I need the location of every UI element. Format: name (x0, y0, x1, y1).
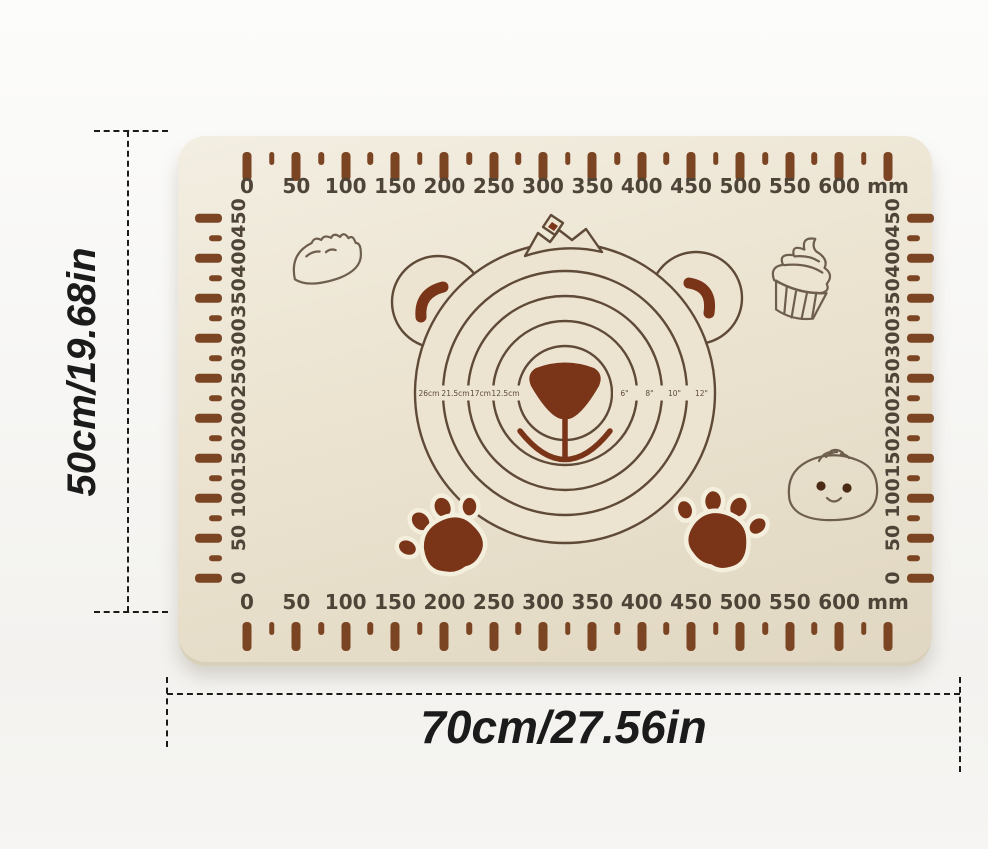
circle-label-inch: 6" (620, 389, 628, 398)
circle-label-cm: 12.5cm (491, 389, 519, 398)
circle-label-cm: 17cm (470, 389, 491, 398)
product-image: 50cm/19.68in 050100150200250300350400450… (0, 0, 988, 849)
dumpling-icon (287, 230, 365, 288)
cupcake-icon (763, 231, 838, 324)
circle-label-inch: 10" (668, 389, 681, 398)
baking-mat: 050100150200250300350400450500550600mm 0… (178, 136, 932, 662)
circle-label-inch: 12" (695, 389, 708, 398)
circle-label-inch: 8" (645, 389, 653, 398)
mat-artwork: 26cm 21.5cm 17cm 12.5cm 6" 8" 10" 12" (178, 136, 932, 662)
width-dimension-line (167, 693, 960, 695)
height-dimension-line (127, 131, 129, 612)
circle-label-cm: 21.5cm (441, 389, 469, 398)
circle-label-cm: 26cm (419, 389, 440, 398)
width-dimension-label: 70cm/27.56in (167, 702, 960, 752)
steamed-bun-icon (789, 450, 877, 520)
height-dimension-cap-bottom (94, 611, 168, 613)
height-dimension-label: 50cm/19.68in (62, 222, 102, 522)
height-dimension-cap-top (94, 130, 168, 132)
